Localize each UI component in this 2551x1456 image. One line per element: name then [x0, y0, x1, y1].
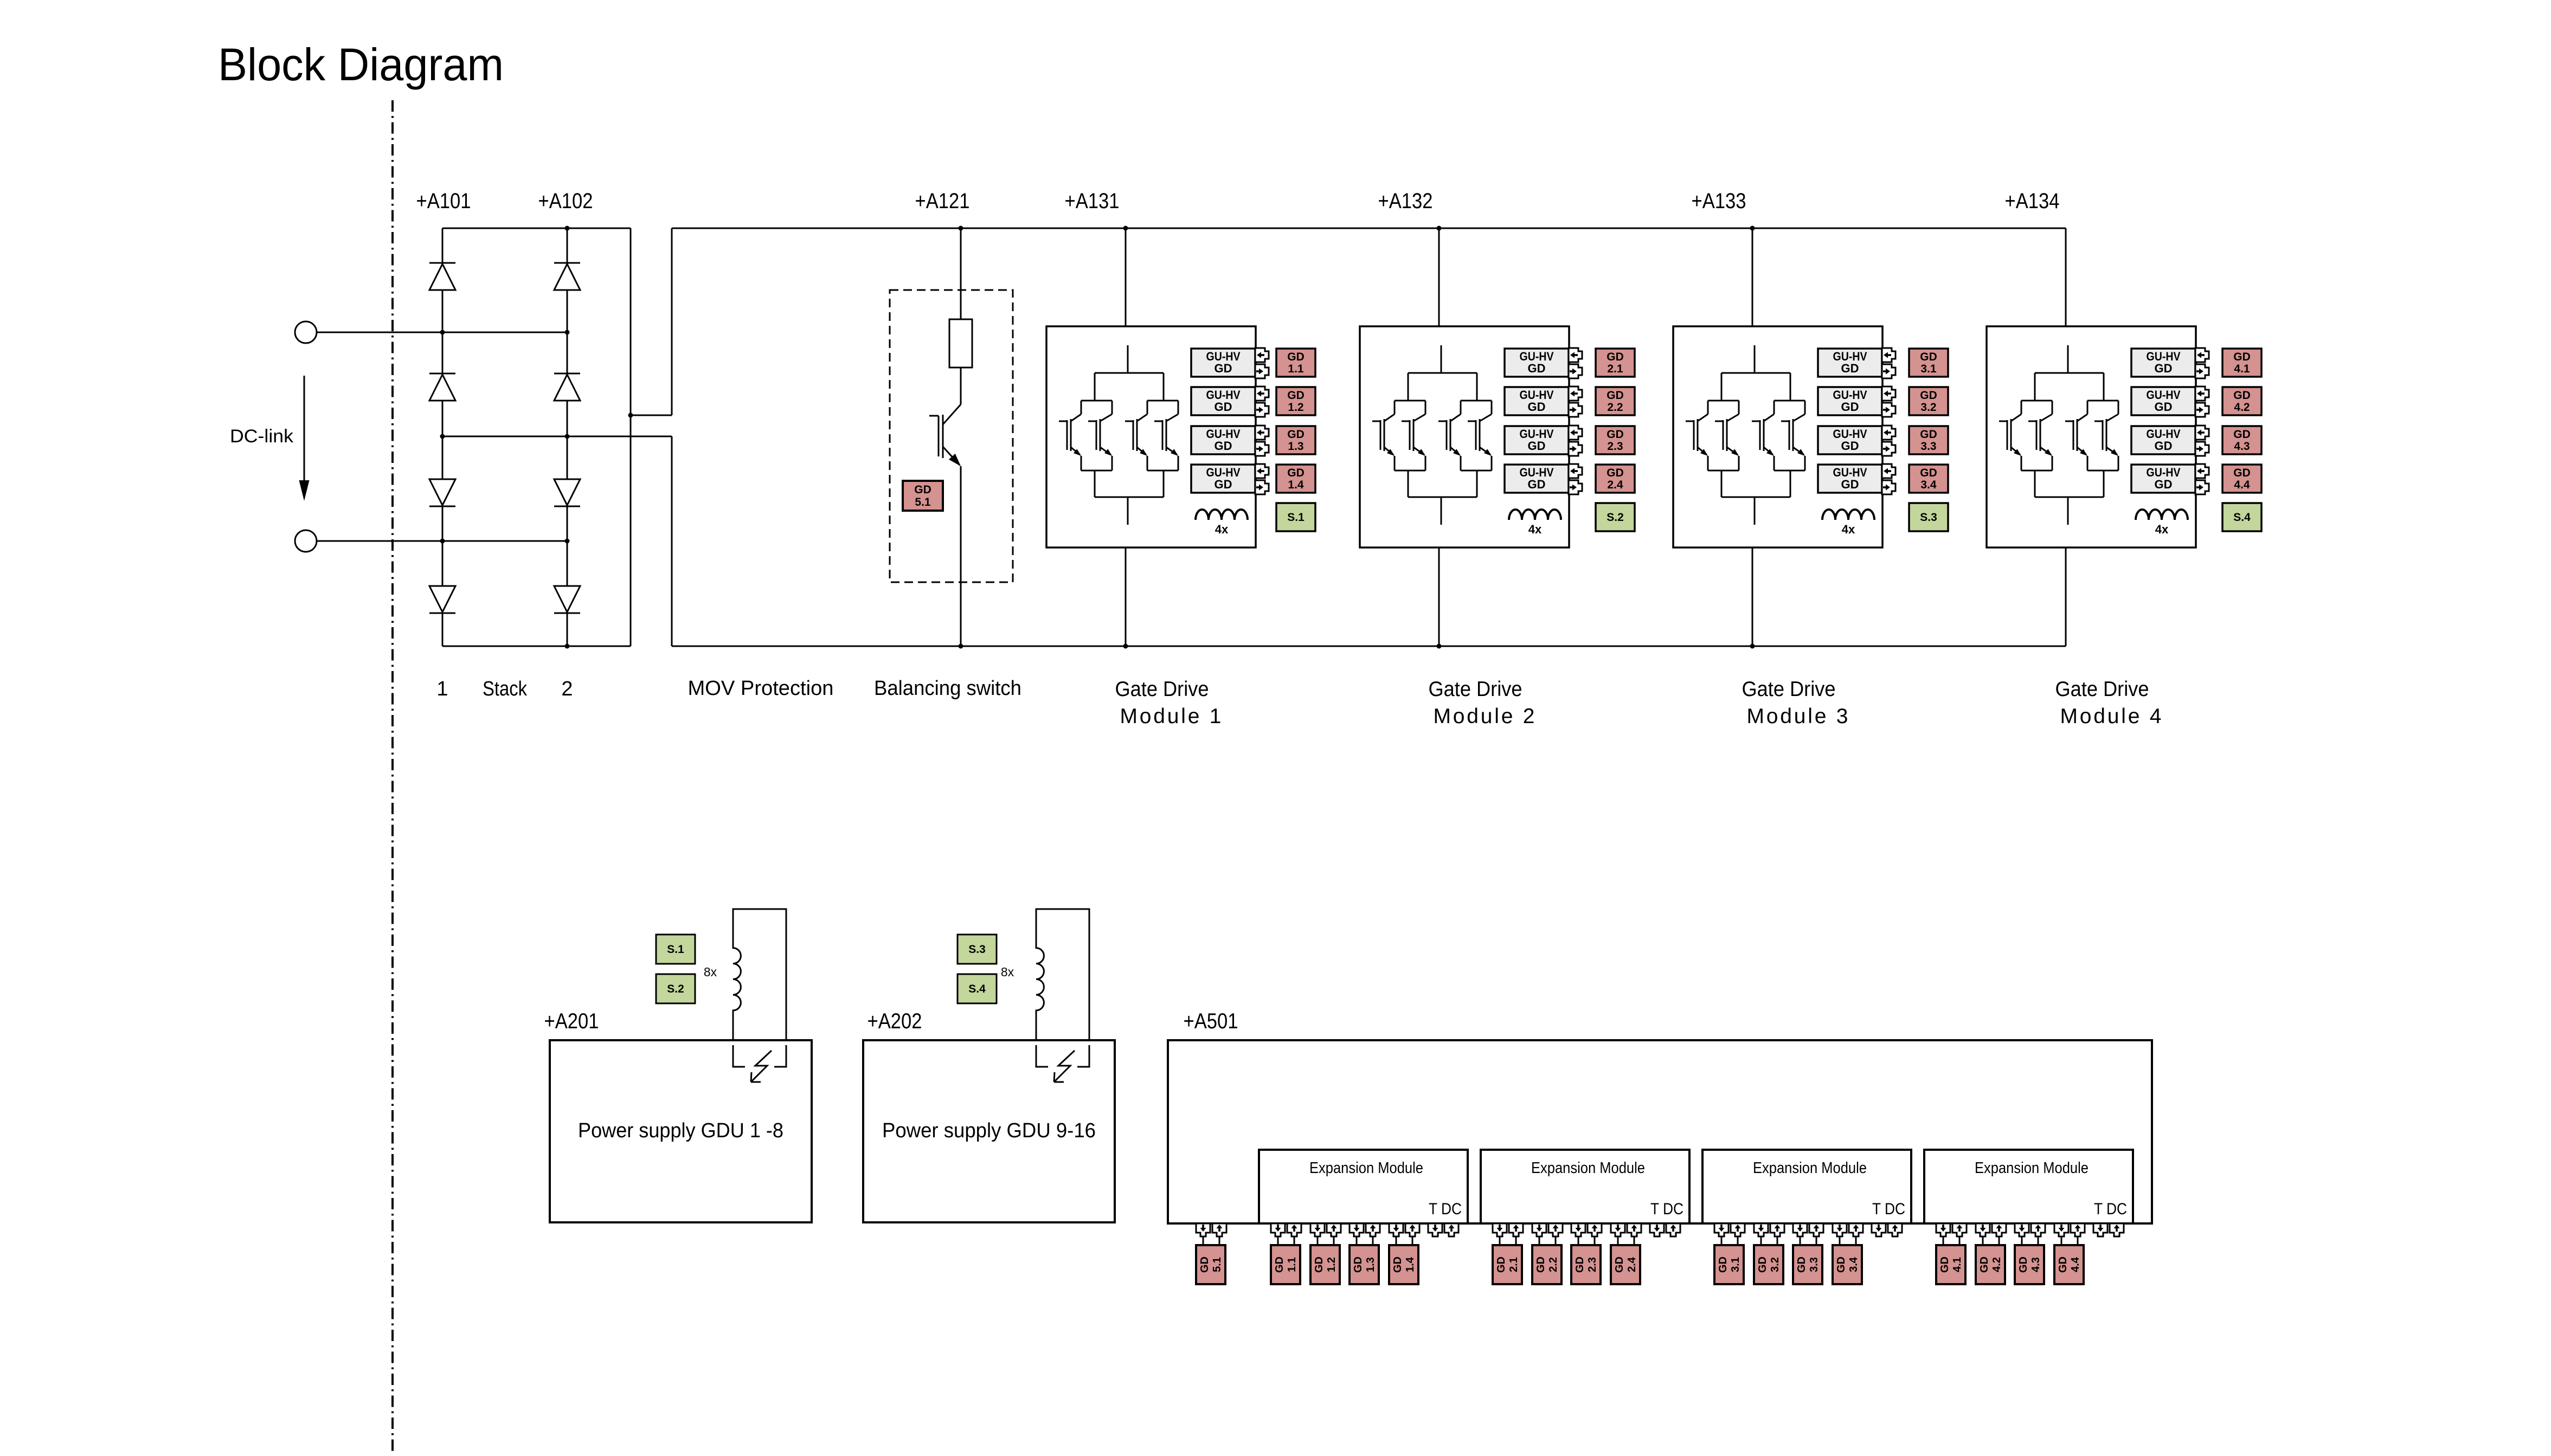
- svg-text:+A133: +A133: [1692, 189, 1746, 213]
- svg-text:GD: GD: [1920, 428, 1937, 441]
- svg-text:GD: GD: [2233, 389, 2251, 402]
- svg-text:GD: GD: [1535, 1257, 1547, 1273]
- svg-text:DC-link: DC-link: [230, 426, 294, 447]
- svg-text:GD: GD: [1574, 1257, 1586, 1273]
- svg-text:GD: GD: [1215, 439, 1232, 453]
- svg-text:S.1: S.1: [1287, 511, 1305, 524]
- svg-text:GD: GD: [914, 484, 931, 496]
- svg-text:Module 1: Module 1: [1120, 705, 1222, 728]
- svg-text:GD: GD: [2155, 478, 2173, 491]
- svg-text:GD: GD: [1841, 400, 1859, 414]
- svg-text:2.1: 2.1: [1508, 1257, 1520, 1272]
- svg-text:4x: 4x: [1215, 523, 1229, 536]
- svg-text:4.3: 4.3: [2030, 1257, 2042, 1272]
- svg-text:GD: GD: [1528, 400, 1546, 414]
- svg-text:Power supply GDU 1 -8: Power supply GDU 1 -8: [578, 1119, 783, 1142]
- svg-text:GD: GD: [2233, 467, 2251, 479]
- svg-text:GD: GD: [1287, 389, 1305, 402]
- svg-text:4.1: 4.1: [1951, 1257, 1963, 1272]
- svg-text:GD: GD: [2155, 362, 2173, 375]
- svg-text:1.4: 1.4: [1404, 1257, 1416, 1272]
- svg-text:3.1: 3.1: [1730, 1257, 1742, 1272]
- svg-text:2.3: 2.3: [1586, 1257, 1598, 1272]
- svg-text:1.2: 1.2: [1288, 401, 1303, 414]
- svg-text:GD: GD: [2155, 439, 2173, 453]
- svg-text:3.1: 3.1: [1920, 363, 1937, 375]
- svg-text:GD: GD: [1274, 1257, 1286, 1273]
- svg-text:2.4: 2.4: [1607, 479, 1623, 491]
- svg-text:GD: GD: [2057, 1257, 2069, 1273]
- svg-text:Block Diagram: Block Diagram: [218, 39, 504, 90]
- svg-text:S.4: S.4: [2233, 511, 2251, 524]
- svg-text:4.2: 4.2: [2234, 401, 2250, 414]
- svg-text:GD: GD: [1215, 478, 1232, 491]
- svg-text:1.3: 1.3: [1365, 1257, 1377, 1272]
- svg-text:2: 2: [561, 678, 573, 700]
- svg-text:1: 1: [436, 678, 448, 700]
- svg-text:Gate Drive: Gate Drive: [2055, 678, 2149, 701]
- svg-text:+A131: +A131: [1065, 189, 1120, 213]
- svg-text:Balancing switch: Balancing switch: [874, 677, 1021, 700]
- svg-text:S.2: S.2: [667, 983, 684, 995]
- svg-text:GD: GD: [1287, 467, 1305, 479]
- svg-text:GD: GD: [1607, 389, 1624, 402]
- svg-text:S.3: S.3: [968, 943, 986, 956]
- svg-text:S.1: S.1: [667, 943, 684, 956]
- svg-text:T DC: T DC: [2094, 1200, 2127, 1218]
- svg-text:GD: GD: [2155, 400, 2173, 414]
- svg-text:S.4: S.4: [968, 983, 986, 995]
- svg-text:GD: GD: [1392, 1257, 1404, 1273]
- svg-text:Gate Drive: Gate Drive: [1115, 678, 1209, 701]
- svg-text:1.3: 1.3: [1288, 440, 1303, 453]
- svg-text:+A201: +A201: [544, 1009, 599, 1033]
- svg-text:3.3: 3.3: [1920, 440, 1936, 453]
- svg-text:Module 3: Module 3: [1747, 705, 1848, 728]
- svg-text:5.1: 5.1: [1211, 1257, 1223, 1272]
- svg-text:4.3: 4.3: [2234, 440, 2250, 453]
- svg-text:GD: GD: [1939, 1257, 1951, 1273]
- svg-text:+A101: +A101: [416, 189, 471, 213]
- svg-text:1.2: 1.2: [1326, 1257, 1338, 1272]
- svg-text:S.3: S.3: [1920, 511, 1937, 524]
- svg-text:+A102: +A102: [538, 189, 593, 213]
- svg-text:GD: GD: [1920, 467, 1937, 479]
- svg-text:GD: GD: [1528, 478, 1546, 491]
- svg-text:Expansion Module: Expansion Module: [1975, 1159, 2089, 1177]
- svg-text:GD: GD: [2017, 1257, 2029, 1273]
- svg-text:+A121: +A121: [915, 189, 970, 213]
- svg-text:8x: 8x: [704, 965, 717, 979]
- svg-text:3.3: 3.3: [1808, 1257, 1820, 1272]
- svg-text:5.1: 5.1: [915, 496, 931, 508]
- svg-text:GD: GD: [1352, 1257, 1364, 1273]
- svg-text:2.2: 2.2: [1607, 401, 1623, 414]
- svg-text:3.4: 3.4: [1920, 479, 1937, 491]
- svg-text:GD: GD: [1215, 362, 1232, 375]
- svg-text:4x: 4x: [2155, 523, 2169, 536]
- svg-text:3.2: 3.2: [1920, 401, 1936, 414]
- svg-text:Module 2: Module 2: [1434, 705, 1535, 728]
- svg-text:GD: GD: [1215, 400, 1232, 414]
- svg-text:GD: GD: [1717, 1257, 1729, 1273]
- svg-text:1.1: 1.1: [1288, 363, 1304, 375]
- svg-text:S.2: S.2: [1607, 511, 1624, 524]
- svg-text:+A134: +A134: [2005, 189, 2060, 213]
- svg-text:T DC: T DC: [1650, 1200, 1683, 1218]
- svg-text:GD: GD: [1528, 439, 1546, 453]
- svg-text:Stack: Stack: [483, 678, 528, 700]
- svg-text:GD: GD: [1607, 428, 1624, 441]
- svg-text:2.4: 2.4: [1626, 1257, 1638, 1272]
- svg-text:GD: GD: [1757, 1257, 1769, 1273]
- svg-text:+A501: +A501: [1184, 1009, 1238, 1033]
- svg-text:Gate Drive: Gate Drive: [1742, 678, 1836, 701]
- svg-text:4.1: 4.1: [2234, 363, 2250, 375]
- svg-text:Expansion Module: Expansion Module: [1531, 1159, 1645, 1177]
- svg-text:GD: GD: [1841, 478, 1859, 491]
- svg-text:Gate Drive: Gate Drive: [1429, 678, 1522, 701]
- svg-text:T DC: T DC: [1872, 1200, 1905, 1218]
- svg-text:GD: GD: [1841, 362, 1859, 375]
- svg-text:GD: GD: [1528, 362, 1546, 375]
- svg-text:GD: GD: [2233, 428, 2251, 441]
- svg-text:T DC: T DC: [1429, 1200, 1462, 1218]
- svg-text:GD: GD: [1796, 1257, 1808, 1273]
- svg-text:2.2: 2.2: [1547, 1257, 1559, 1272]
- svg-text:1.1: 1.1: [1286, 1257, 1298, 1272]
- svg-text:4.4: 4.4: [2234, 479, 2250, 491]
- svg-text:GD: GD: [1920, 389, 1937, 402]
- svg-text:GD: GD: [1313, 1257, 1325, 1273]
- svg-text:3.2: 3.2: [1769, 1257, 1781, 1272]
- svg-text:Module 4: Module 4: [2060, 705, 2162, 728]
- svg-text:4.4: 4.4: [2070, 1257, 2081, 1272]
- svg-text:4.2: 4.2: [1991, 1257, 2003, 1272]
- svg-text:+A202: +A202: [868, 1009, 922, 1033]
- svg-text:GD: GD: [1495, 1257, 1507, 1273]
- svg-text:GD: GD: [1920, 351, 1937, 363]
- svg-text:GD: GD: [1614, 1257, 1625, 1273]
- svg-text:GD: GD: [1199, 1257, 1211, 1273]
- svg-text:4x: 4x: [1528, 523, 1542, 536]
- svg-text:4x: 4x: [1842, 523, 1855, 536]
- svg-text:GD: GD: [1607, 467, 1624, 479]
- svg-text:GD: GD: [2233, 351, 2251, 363]
- svg-text:3.4: 3.4: [1848, 1257, 1860, 1272]
- svg-text:1.4: 1.4: [1288, 479, 1304, 491]
- svg-text:2.1: 2.1: [1607, 363, 1623, 375]
- svg-text:Power supply GDU 9-16: Power supply GDU 9-16: [882, 1119, 1096, 1142]
- svg-text:8x: 8x: [1001, 965, 1014, 979]
- svg-text:2.3: 2.3: [1607, 440, 1623, 453]
- svg-text:GD: GD: [1607, 351, 1624, 363]
- svg-text:Expansion Module: Expansion Module: [1753, 1159, 1867, 1177]
- svg-text:GD: GD: [1287, 428, 1305, 441]
- svg-text:GD: GD: [1841, 439, 1859, 453]
- svg-text:GD: GD: [1287, 351, 1305, 363]
- svg-text:GD: GD: [1978, 1257, 1990, 1273]
- svg-text:+A132: +A132: [1378, 189, 1433, 213]
- svg-text:GD: GD: [1835, 1257, 1847, 1273]
- svg-text:Expansion Module: Expansion Module: [1309, 1159, 1423, 1177]
- svg-text:MOV Protection: MOV Protection: [688, 677, 834, 700]
